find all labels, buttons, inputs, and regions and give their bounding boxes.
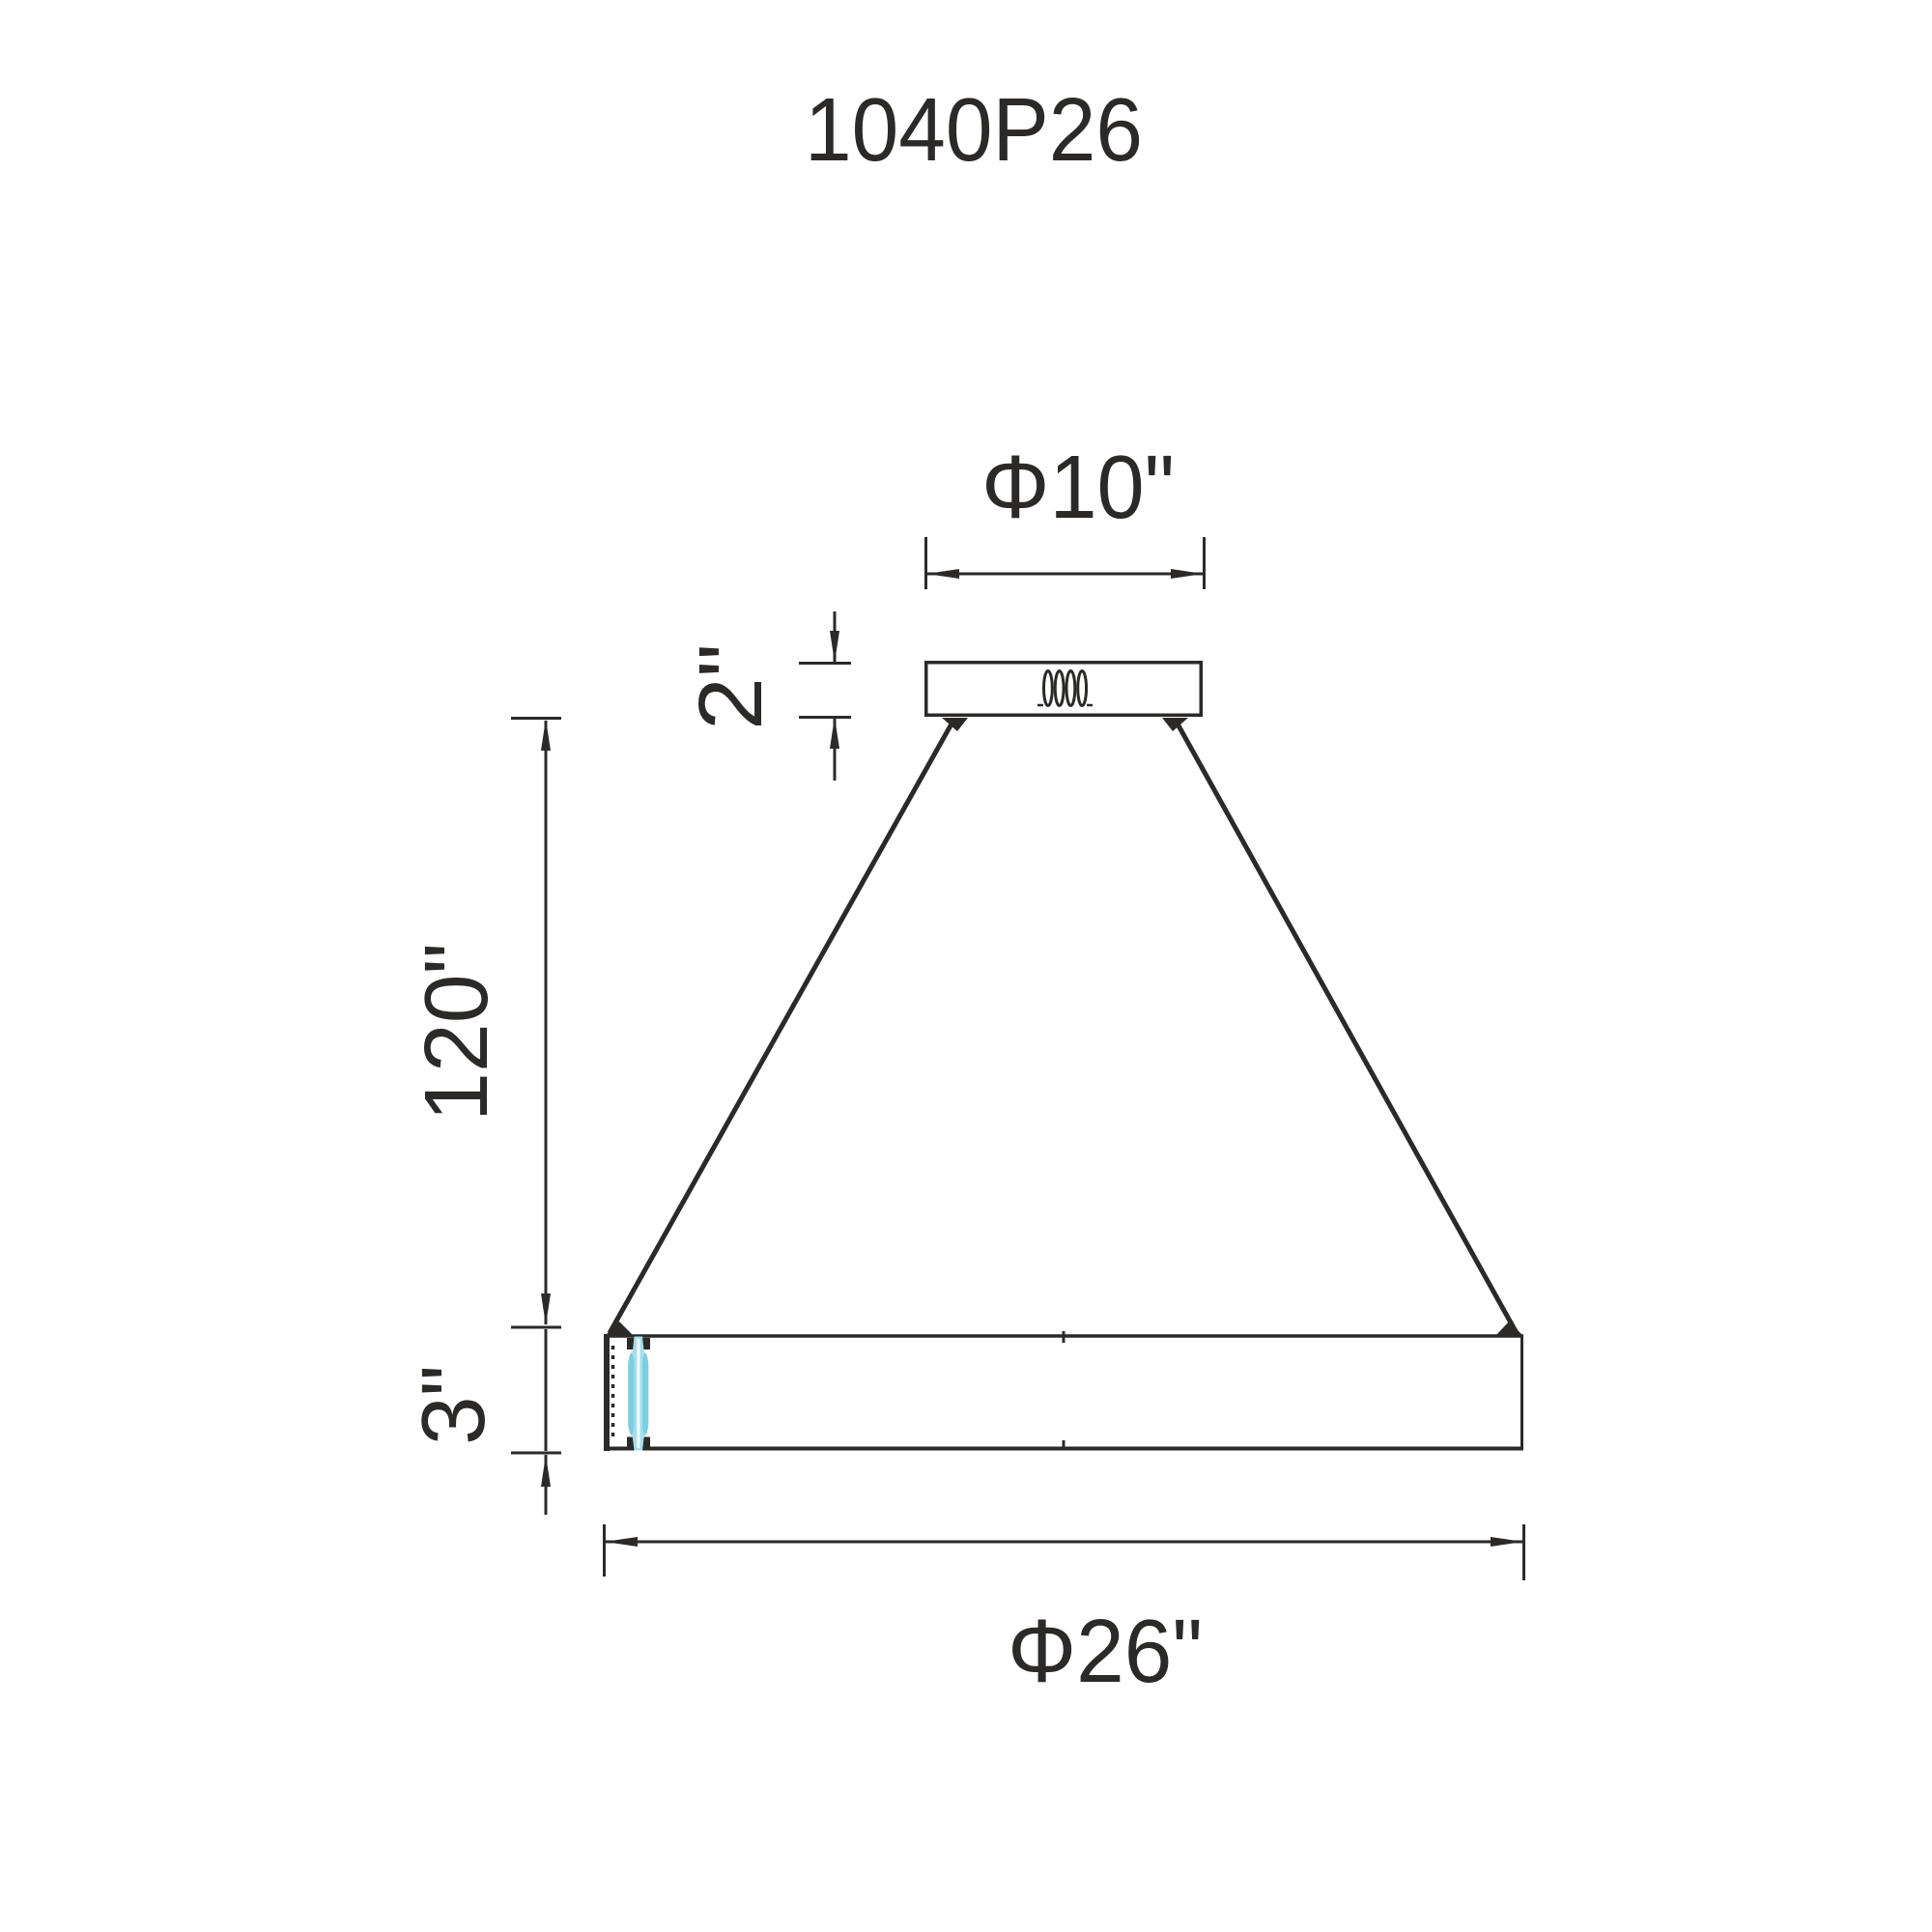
svg-text:120": 120" xyxy=(406,943,506,1122)
svg-text:2": 2" xyxy=(680,643,781,730)
svg-text:3": 3" xyxy=(403,1365,503,1445)
svg-text:Φ10": Φ10" xyxy=(981,437,1175,537)
svg-text:1040P26: 1040P26 xyxy=(805,79,1143,180)
svg-text:Φ26": Φ26" xyxy=(1008,1601,1203,1701)
